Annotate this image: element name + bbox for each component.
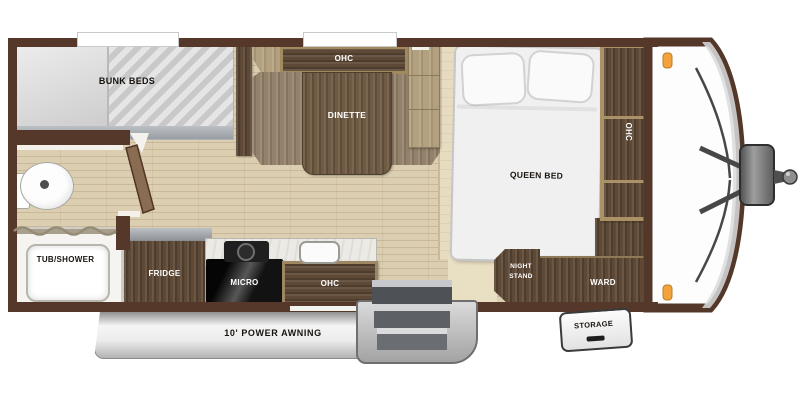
floorplan-canvas: 10' POWER AWNING BUNK BEDS TUB/SHOWER FR…	[0, 0, 800, 400]
bunk-beds-label: BUNK BEDS	[47, 76, 207, 87]
sink	[299, 241, 340, 264]
night-stand: NIGHT STAND	[494, 249, 540, 302]
dinette-ohc: OHC	[280, 46, 408, 74]
fridge: FRIDGE	[124, 241, 205, 307]
propane-tank-cover	[740, 145, 774, 205]
entry-step	[374, 304, 450, 328]
dinette-label: DINETTE	[303, 110, 391, 120]
bathroom-wall-trim	[15, 145, 123, 150]
cooktop	[224, 241, 269, 262]
tub-shower: TUB/SHOWER	[12, 227, 123, 311]
storage-door: STORAGE	[559, 308, 634, 353]
bathroom-wall-stub	[116, 216, 130, 250]
entry-step	[377, 328, 447, 350]
storage-label: STORAGE	[561, 318, 625, 331]
pantry-cabinet	[408, 44, 440, 148]
clearance-light-icon	[663, 285, 672, 300]
night-stand-label: NIGHT STAND	[503, 262, 539, 283]
bunk-beds: BUNK BEDS	[16, 46, 234, 140]
bedroom-ohc-label: OHC	[623, 111, 633, 151]
bunk-side-cabinet	[236, 44, 252, 156]
clearance-light-icon	[663, 53, 672, 68]
microwave: MICRO	[206, 259, 283, 304]
entry-step	[372, 280, 452, 304]
window	[77, 32, 179, 47]
shower-curtain-rod	[14, 229, 117, 234]
hitch-ball-highlight	[786, 172, 790, 176]
hitch-ball	[783, 170, 797, 184]
dinette-ohc-label: OHC	[283, 54, 405, 64]
pillow	[460, 52, 526, 107]
tub-basin	[26, 244, 110, 302]
bathroom-wall	[8, 130, 130, 145]
fridge-countertop	[120, 228, 212, 241]
pillow	[526, 49, 595, 104]
exterior-wall-left	[8, 38, 17, 312]
dinette-table: DINETTE	[302, 72, 392, 175]
burner-icon	[237, 243, 255, 261]
front-cap-graphic	[640, 30, 800, 320]
toilet-bowl	[20, 162, 74, 210]
queen-bed: QUEEN BED	[450, 44, 604, 263]
tub-shower-label: TUB/SHOWER	[16, 255, 115, 265]
pantry-divider	[409, 75, 439, 76]
queen-bed-label: QUEEN BED	[466, 169, 606, 182]
window	[303, 32, 397, 47]
toilet-drain	[40, 180, 49, 189]
kitchen-ohc-label: OHC	[285, 279, 375, 289]
storage-handle	[586, 335, 604, 341]
fridge-label: FRIDGE	[124, 269, 205, 279]
wardrobe-label: WARD	[563, 278, 643, 288]
dinette-bench-left	[252, 72, 308, 165]
pantry-divider	[409, 109, 439, 110]
wardrobe: WARD	[538, 256, 653, 307]
microwave-label: MICRO	[206, 278, 283, 288]
sheet-fold	[457, 105, 597, 112]
